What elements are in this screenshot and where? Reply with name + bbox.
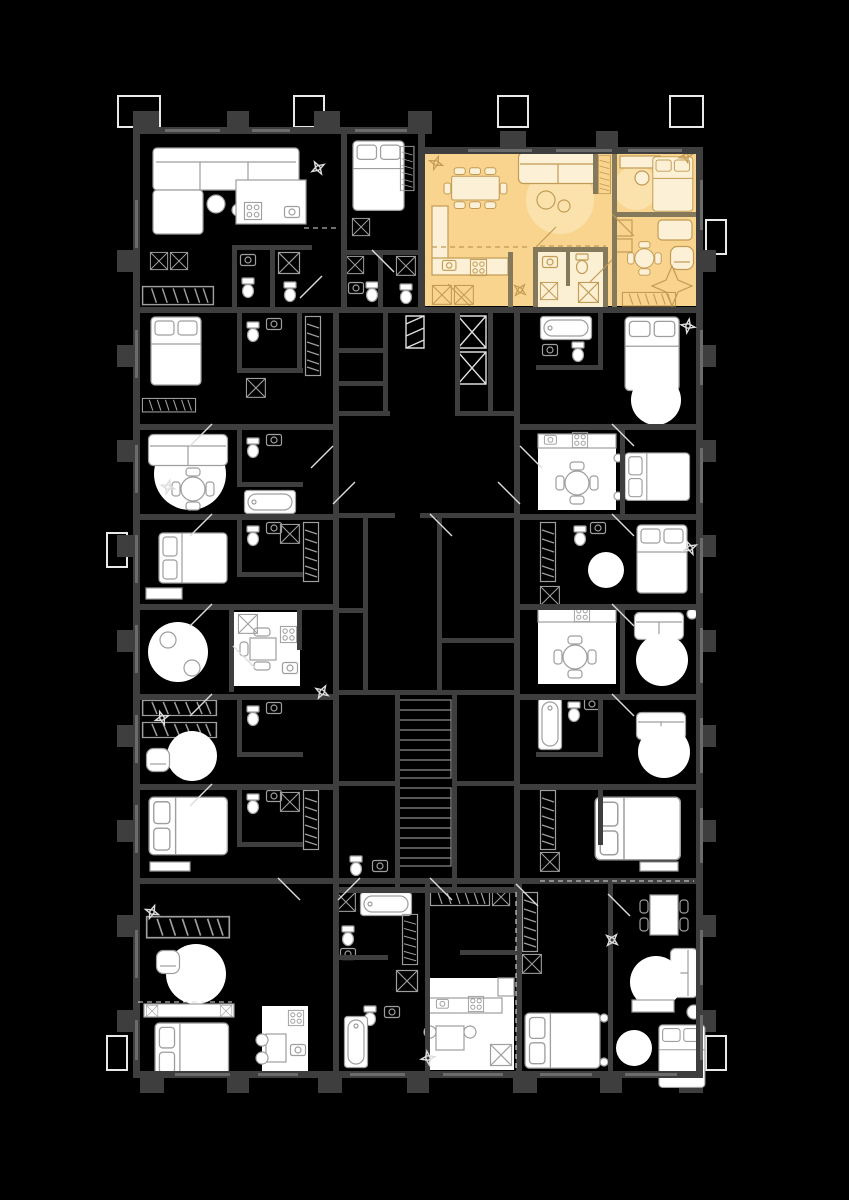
bed <box>159 533 227 583</box>
toilet <box>247 526 259 546</box>
area-rug <box>616 1030 652 1066</box>
bed <box>625 453 690 501</box>
side-table <box>687 609 697 619</box>
toilet <box>247 794 259 814</box>
toilet <box>366 282 378 302</box>
area-rug <box>636 634 688 686</box>
bathtub <box>345 1017 368 1068</box>
bed <box>353 141 404 210</box>
chair <box>256 1052 268 1064</box>
chaise <box>153 190 203 234</box>
bathtub <box>361 893 412 916</box>
chair <box>464 1026 476 1038</box>
highlighted-apartment[interactable] <box>425 147 696 307</box>
daybed <box>658 220 692 240</box>
nightstand <box>600 1058 608 1066</box>
bed <box>149 797 227 855</box>
coffee-table <box>207 195 225 213</box>
bench <box>640 862 678 871</box>
area-rug <box>167 731 217 781</box>
toilet <box>247 706 259 726</box>
toilet <box>576 254 588 274</box>
area-rug <box>638 726 690 778</box>
area-rug <box>631 375 681 425</box>
dining-table <box>650 895 678 935</box>
toilet <box>568 702 580 722</box>
sofa <box>519 153 598 184</box>
desk <box>146 588 182 599</box>
toilet <box>284 282 296 302</box>
bathtub <box>245 491 296 514</box>
chair <box>184 660 200 676</box>
bathtub <box>541 317 592 340</box>
bench <box>150 862 190 871</box>
kitchen-floor <box>428 978 514 1070</box>
dining-table <box>266 1034 286 1062</box>
kitchen-counter <box>432 206 448 260</box>
toilet <box>342 926 354 946</box>
toilet <box>350 856 362 876</box>
bed <box>155 1023 228 1077</box>
armchair <box>671 247 694 270</box>
floor-plan-canvas <box>0 0 849 1200</box>
toilet <box>572 342 584 362</box>
bed <box>151 317 201 385</box>
toilet <box>242 278 254 298</box>
toilet <box>574 526 586 546</box>
nightstand <box>600 1014 608 1022</box>
chair <box>160 632 176 648</box>
bedroom-rug <box>614 166 658 210</box>
chair <box>256 1034 268 1046</box>
sofa <box>149 435 228 466</box>
bed <box>525 1013 600 1068</box>
armchair <box>157 951 180 974</box>
bed <box>595 797 680 860</box>
toilet <box>400 284 412 304</box>
dining-table <box>436 1026 464 1050</box>
dining-table <box>250 638 276 660</box>
area-rug <box>148 622 208 682</box>
toilet <box>247 322 259 342</box>
bathtub <box>539 699 562 750</box>
desk <box>632 1000 674 1012</box>
armchair <box>147 749 170 772</box>
area-rug <box>588 552 624 588</box>
kitchen-counter <box>428 998 502 1013</box>
desk-chair <box>635 171 649 185</box>
building-floor-plan <box>0 0 849 1200</box>
bed <box>653 157 693 211</box>
toilet <box>247 438 259 458</box>
bed <box>637 525 687 593</box>
